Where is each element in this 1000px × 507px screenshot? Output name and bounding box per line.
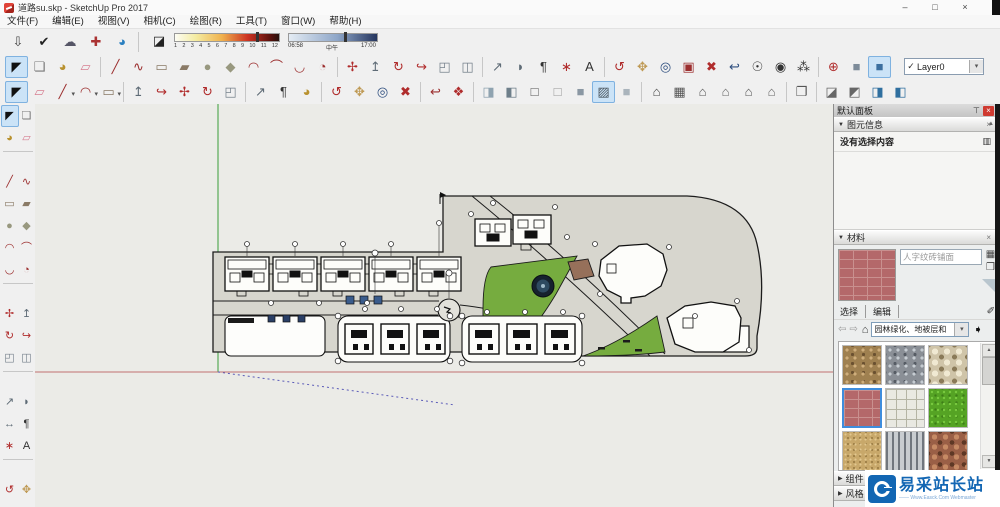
push-pull-tool[interactable]: ↥: [127, 81, 150, 103]
layer-current-value: Layer0: [917, 62, 969, 72]
material-category-value: 园林绿化、地被层和: [872, 324, 954, 335]
polygon-tool[interactable]: ◆: [219, 56, 242, 78]
back-edges-style-icon[interactable]: ◧: [500, 81, 523, 103]
swatch-grass[interactable]: [928, 388, 968, 428]
minimize-button[interactable]: –: [890, 0, 920, 15]
edit-component-icon[interactable]: ❐: [790, 81, 813, 103]
view-right-icon[interactable]: ⌂: [714, 81, 737, 103]
axes-tool[interactable]: ∗: [1, 435, 19, 457]
menu-bar: 文件(F)编辑(E)视图(V)相机(C)绘图(R)工具(T)窗口(W)帮助(H): [0, 15, 1000, 28]
toolbar-separator: [337, 57, 338, 77]
rotated-rectangle-tool[interactable]: ▰: [173, 56, 196, 78]
paint-bucket-tool[interactable]: ◕: [51, 56, 74, 78]
shrub-mark: [635, 349, 642, 352]
materials-scrollbar[interactable]: ▲ ▼: [980, 343, 995, 469]
close-button[interactable]: ×: [950, 0, 980, 15]
tab-edit[interactable]: 编辑: [873, 305, 899, 318]
follow-me-tool[interactable]: ↪: [18, 325, 36, 347]
text-tool[interactable]: ¶: [18, 413, 36, 435]
in-model-icon[interactable]: ❒: [986, 262, 995, 273]
add-link-icon[interactable]: ✚: [83, 31, 109, 53]
follow-me-tool[interactable]: ↪: [150, 81, 173, 103]
shadow-date-slider[interactable]: [174, 33, 280, 42]
in-model-home-icon[interactable]: ⌂: [862, 324, 869, 336]
date-slider-ticks: 123456789101112: [174, 43, 278, 49]
toolbar-separator: [1, 456, 35, 463]
screen-right-edge: [995, 104, 1000, 507]
eraser-tool[interactable]: ▱: [74, 56, 97, 78]
text-tool[interactable]: ¶: [272, 81, 295, 103]
detail-arrow-icon[interactable]: ➧: [973, 323, 982, 336]
forward-arrow-icon[interactable]: ⇨: [849, 324, 857, 335]
toolbar-separator: [786, 82, 787, 102]
three-point-arc-tool[interactable]: ◡: [1, 259, 19, 281]
rotated-rectangle-tool[interactable]: ▰: [18, 193, 36, 215]
materials-title: 材料: [847, 231, 986, 244]
select-tool[interactable]: ◤: [1, 105, 19, 127]
tab-select[interactable]: 选择: [840, 305, 866, 318]
collapse-arrow-icon[interactable]: ▼: [838, 122, 844, 128]
circle-tool[interactable]: ●: [1, 215, 19, 237]
orbit-tool[interactable]: ↺: [1, 479, 19, 501]
offset-tool[interactable]: ◫: [456, 56, 479, 78]
materials-preview-row: 人字纹砖铺面 ▦ ❒: [834, 245, 1000, 303]
time-end-label: 17:00: [361, 43, 376, 52]
toolbar-separator: [1, 148, 35, 155]
section-cut-icon[interactable]: ◨: [866, 81, 889, 103]
upload-model-icon[interactable]: ☁: [57, 31, 83, 53]
orbit-tool[interactable]: ↺: [325, 81, 348, 103]
toolbar-separator: [604, 57, 605, 77]
title-bar: 道路su.skp - SketchUp Pro 2017 – □ ×: [0, 0, 1000, 15]
swatch-gravel-brown[interactable]: [842, 345, 882, 385]
time-slider-handle[interactable]: [344, 32, 347, 42]
collapse-arrow-icon[interactable]: ▼: [838, 235, 844, 241]
scroll-up-button[interactable]: ▲: [982, 344, 996, 357]
material-category-combo[interactable]: 园林绿化、地被层和 ▾: [871, 322, 969, 337]
layer-dropdown-button[interactable]: ▾: [969, 60, 983, 73]
paint-bucket-tool[interactable]: ◕: [295, 81, 318, 103]
select-tool[interactable]: ◤: [5, 56, 28, 78]
menu-edit[interactable]: 编辑(E): [45, 15, 91, 28]
selection-status: 没有选择内容: [840, 135, 982, 148]
two-point-arc-tool[interactable]: ⌒: [265, 56, 288, 78]
section-plane-icon[interactable]: ◪: [820, 81, 843, 103]
shrub-mark: [623, 340, 630, 343]
monochrome-style-icon[interactable]: ■: [615, 81, 638, 103]
arc-tool[interactable]: ◠: [74, 81, 97, 103]
create-material-icon[interactable]: ▦: [986, 249, 995, 260]
toolbar-separator: [138, 32, 139, 52]
toolbar-separator: [473, 82, 474, 102]
tray-title: 默认面板: [837, 104, 973, 117]
view-top-icon[interactable]: ▦: [668, 81, 691, 103]
default-tray-panel: 默认面板 ⊤ × ▲ ▼ 图元信息 × 没有选择内容 ▥ ▼ 材料 × 人字纹砖…: [833, 104, 1000, 507]
menu-draw[interactable]: 绘图(R): [183, 15, 229, 28]
polygon-tool[interactable]: ◆: [18, 215, 36, 237]
sample-paint-icon[interactable]: ✐: [987, 306, 995, 317]
sketchup-window: 道路su.skp - SketchUp Pro 2017 – □ × 文件(F)…: [0, 0, 1000, 507]
arc-tool[interactable]: ◠: [1, 237, 19, 259]
tape-measure-tool[interactable]: ↗: [486, 56, 509, 78]
view-left-icon[interactable]: ⌂: [760, 81, 783, 103]
pan-tool[interactable]: ✥: [631, 56, 654, 78]
time-start-label: 06:58: [288, 43, 303, 52]
zoom-extents-tool[interactable]: ✖: [394, 81, 417, 103]
drawing-canvas[interactable]: [35, 104, 833, 507]
easck-logo-icon: [868, 475, 896, 503]
shaded-textures-style-icon[interactable]: ▨: [592, 81, 615, 103]
line-tool[interactable]: ╱: [51, 81, 74, 103]
menu-window[interactable]: 窗口(W): [274, 15, 322, 28]
dimension-tool[interactable]: ↔: [1, 413, 19, 435]
toolbar-separator: [321, 82, 322, 102]
window-edge: [992, 0, 1000, 15]
rectangle-tool[interactable]: ▭: [1, 193, 19, 215]
swatch-pebbles[interactable]: [928, 345, 968, 385]
shrub-mark: [598, 347, 605, 350]
watermark: 易采站长站 —— Www.Easck.Com Webmaster: [865, 470, 1000, 507]
swatch-sand[interactable]: [842, 431, 882, 470]
toolbar-separator: [123, 82, 124, 102]
pie-tool[interactable]: ◔: [18, 259, 36, 281]
follow-me-tool[interactable]: ↪: [410, 56, 433, 78]
move-tool[interactable]: ✢: [341, 56, 364, 78]
swatch-fence[interactable]: [885, 431, 925, 470]
zoom-tool[interactable]: ◎: [371, 81, 394, 103]
zoom-window-tool[interactable]: ▣: [18, 501, 36, 507]
axes-tool[interactable]: ∗: [555, 56, 578, 78]
materials-nav-row: ⇦ ⇨ ⌂ 园林绿化、地被层和 ▾ ➧: [834, 320, 1000, 339]
walk-tool[interactable]: ⁂: [792, 56, 815, 78]
date-slider-handle[interactable]: [256, 32, 259, 42]
pond[interactable]: [532, 275, 554, 297]
paint-bucket-tool[interactable]: ◕: [1, 127, 19, 149]
watermark-subtitle: —— Www.Easck.Com Webmaster: [899, 495, 984, 501]
toolbar-separator: [818, 57, 819, 77]
push-pull-tool[interactable]: ↥: [18, 303, 36, 325]
zoom-previous-tool[interactable]: ↩: [424, 81, 447, 103]
rotate-tool[interactable]: ↻: [1, 325, 19, 347]
toolbar-separator: [100, 57, 101, 77]
parking-pad[interactable]: [225, 315, 325, 356]
tape-measure-tool[interactable]: ↗: [1, 391, 19, 413]
left-tool-palette: ◤❏◕▱╱∿▭▰●◆◠⌒◡◔✢↥↻↪◰◫↗◗↔¶∗A↺✥◎▣✖↩☉◉: [0, 104, 36, 507]
toolbar-separator: [420, 82, 421, 102]
freehand-tool[interactable]: ∿: [127, 56, 150, 78]
eraser-tool[interactable]: ▱: [28, 81, 51, 103]
toolbar-separator: [1, 280, 35, 287]
zoom-extents-tool[interactable]: ✖: [700, 56, 723, 78]
shadow-settings-icon[interactable]: ◪: [146, 30, 172, 52]
toolbar-separator: [1, 368, 35, 375]
3d-text-tool[interactable]: A: [18, 435, 36, 457]
pin-icon[interactable]: ⊤: [973, 106, 980, 115]
wireframe-style-icon[interactable]: □: [523, 81, 546, 103]
zoom-window-tool[interactable]: ▣: [677, 56, 700, 78]
hidden-line-style-icon[interactable]: □: [546, 81, 569, 103]
swatch-pavers[interactable]: [885, 388, 925, 428]
time-noon-label: 中午: [326, 43, 338, 52]
scale-tool[interactable]: ◰: [433, 56, 456, 78]
blue-axis: [218, 372, 455, 405]
menu-tools[interactable]: 工具(T): [229, 15, 274, 28]
toolbar-separator: [482, 57, 483, 77]
eraser-tool[interactable]: ▱: [18, 127, 36, 149]
entity-info-body: 没有选择内容 ▥: [834, 132, 1000, 230]
3d-text-tool[interactable]: A: [578, 56, 601, 78]
scroll-thumb[interactable]: [982, 357, 996, 385]
line-tool[interactable]: ╱: [104, 56, 127, 78]
layer-check-icon: ✓: [905, 61, 917, 72]
rowhouse-strip[interactable]: [225, 257, 461, 296]
view-back-icon[interactable]: ⌂: [737, 81, 760, 103]
category-dropdown-button[interactable]: ▾: [954, 323, 968, 336]
line-tool[interactable]: ╱: [1, 171, 19, 193]
zoom-tool[interactable]: ◎: [654, 56, 677, 78]
freehand-tool[interactable]: ∿: [18, 171, 36, 193]
look-around-tool[interactable]: ◉: [769, 56, 792, 78]
pan-tool[interactable]: ✥: [18, 479, 36, 501]
text-tool[interactable]: ¶: [532, 56, 555, 78]
active-material-preview[interactable]: [838, 249, 896, 301]
move-tool[interactable]: ✢: [1, 303, 19, 325]
materials-close-icon[interactable]: ×: [986, 233, 991, 242]
entity-details-icon[interactable]: ▥: [982, 136, 991, 147]
zoom-previous-tool[interactable]: ↩: [723, 56, 746, 78]
tape-measure-tool[interactable]: ↗: [249, 81, 272, 103]
arc-tool[interactable]: ◠: [242, 56, 265, 78]
expand-arrow-icon[interactable]: ▶: [838, 475, 843, 482]
offset-tool[interactable]: ◫: [18, 347, 36, 369]
model-check-icon[interactable]: ✔: [31, 31, 57, 53]
menu-help[interactable]: 帮助(H): [322, 15, 368, 28]
menu-view[interactable]: 视图(V): [91, 15, 137, 28]
two-point-arc-tool[interactable]: ⌒: [18, 237, 36, 259]
three-point-arc-tool[interactable]: ◡: [288, 56, 311, 78]
position-camera-tool[interactable]: ☉: [746, 56, 769, 78]
zoom-tool[interactable]: ◎: [1, 501, 19, 507]
expand-arrow-icon[interactable]: ▶: [838, 490, 843, 497]
rectangle-tool[interactable]: ▭: [150, 56, 173, 78]
add-location-icon[interactable]: ❖: [447, 81, 470, 103]
make-component-tool[interactable]: ❏: [18, 105, 36, 127]
materials-header[interactable]: ▼ 材料 ×: [834, 230, 1000, 245]
pie-tool[interactable]: ◔: [311, 56, 334, 78]
move-tool[interactable]: ✢: [173, 81, 196, 103]
material-name-field[interactable]: 人字纹砖铺面: [900, 249, 982, 265]
back-arrow-icon[interactable]: ⇦: [838, 324, 846, 335]
circle-tool[interactable]: ●: [196, 56, 219, 78]
site-plan-svg[interactable]: [35, 104, 833, 507]
swatch-gravel-gray[interactable]: [885, 345, 925, 385]
tray-close-button[interactable]: ×: [983, 106, 994, 116]
shadow-time-slider[interactable]: [288, 33, 378, 42]
push-pull-tool[interactable]: ↥: [364, 56, 387, 78]
toolbar-separator: [641, 82, 642, 102]
layer-combo[interactable]: ✓ Layer0 ▾: [904, 58, 984, 75]
view-front-icon[interactable]: ⌂: [691, 81, 714, 103]
watermark-title: 易采站长站: [899, 477, 984, 495]
toolbar-main: ◤❏◕▱╱∿▭▰●◆◠⌒◡◔✢↥↻↪◰◫↗◗¶∗A↺✥◎▣✖↩☉◉⁂⊕■■ ✓ …: [0, 54, 1000, 79]
shaded-style-icon[interactable]: ■: [845, 56, 868, 78]
swatch-brick-red[interactable]: [842, 388, 882, 428]
maximize-button[interactable]: □: [920, 0, 950, 15]
pan-tool[interactable]: ✥: [348, 81, 371, 103]
swatch-stone-rust[interactable]: [928, 431, 968, 470]
scroll-down-button[interactable]: ▼: [982, 455, 996, 468]
scale-tool[interactable]: ◰: [1, 347, 19, 369]
rotate-tool[interactable]: ↻: [196, 81, 219, 103]
materials-tabs: 选择 编辑 ✐: [834, 303, 1000, 320]
toolbar-styles-views: ◤▱╱◠▭↥↪✢↻◰↗¶◕↺✥◎✖↩❖◨◧□□■▨■⌂▦⌂⌂⌂⌂❐◪◩◨◧: [0, 79, 1000, 105]
section-fill-icon[interactable]: ◧: [889, 81, 912, 103]
get-models-icon[interactable]: ⇩: [5, 31, 31, 53]
view-target-icon[interactable]: ⊕: [822, 56, 845, 78]
view-iso-icon[interactable]: ⌂: [645, 81, 668, 103]
toolbar-separator: [245, 82, 246, 102]
select-tool[interactable]: ◤: [5, 81, 28, 103]
shaded-style-icon[interactable]: ■: [569, 81, 592, 103]
scale-tool[interactable]: ◰: [219, 81, 242, 103]
sketchup-logo-icon: [4, 3, 14, 13]
entity-info-title: 图元信息: [847, 118, 986, 131]
window-title: 道路su.skp - SketchUp Pro 2017: [18, 1, 148, 14]
protractor-tool[interactable]: ◗: [18, 391, 36, 413]
menu-file[interactable]: 文件(F): [0, 15, 45, 28]
east-building-2[interactable]: [667, 302, 749, 352]
make-component-tool[interactable]: ❏: [28, 56, 51, 78]
panel-scroll-up-icon[interactable]: ▲: [988, 121, 994, 127]
menu-camera[interactable]: 相机(C): [136, 15, 182, 28]
toolbar-separator: [816, 82, 817, 102]
entity-info-header[interactable]: ▼ 图元信息 ×: [834, 117, 1000, 132]
rectangle-tool[interactable]: ▭: [97, 81, 120, 103]
extension-warehouse-icon[interactable]: ◕: [109, 31, 135, 53]
protractor-tool[interactable]: ◗: [509, 56, 532, 78]
south-row-2[interactable]: [462, 316, 582, 362]
south-row-1[interactable]: [338, 316, 450, 362]
materials-list: ▲ ▼: [838, 341, 997, 471]
xray-style-icon[interactable]: ◨: [477, 81, 500, 103]
shadow-toolbar: ◪ 123456789101112 06:58 中午 17:00: [146, 30, 384, 54]
section-display-icon[interactable]: ◩: [843, 81, 866, 103]
rotate-tool[interactable]: ↻: [387, 56, 410, 78]
textured-style-icon[interactable]: ■: [868, 56, 891, 78]
tray-title-bar[interactable]: 默认面板 ⊤ ×: [834, 104, 1000, 117]
orbit-tool[interactable]: ↺: [608, 56, 631, 78]
toolbar-web-shadow: ⇩✔☁✚◕ ◪ 123456789101112 06:58 中午 17:00: [0, 28, 1000, 55]
